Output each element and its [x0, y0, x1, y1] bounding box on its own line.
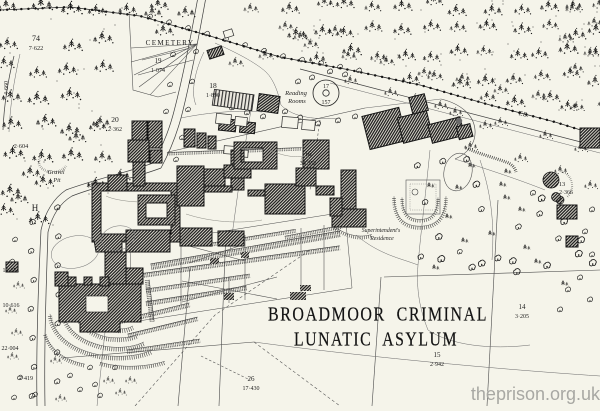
- svg-text:LUNATIC ASYLUM: LUNATIC ASYLUM: [294, 329, 458, 351]
- svg-text:7·419: 7·419: [19, 376, 33, 382]
- svg-text:19: 19: [155, 57, 163, 65]
- svg-text:Rooms: Rooms: [287, 98, 306, 105]
- svg-text:14: 14: [519, 303, 527, 311]
- svg-text:15: 15: [434, 351, 442, 359]
- svg-text:17·430: 17·430: [243, 386, 260, 392]
- svg-text:15·671: 15·671: [3, 268, 20, 274]
- svg-text:20: 20: [111, 115, 119, 124]
- svg-text:2·942: 2·942: [430, 362, 444, 368]
- svg-text:26: 26: [248, 375, 256, 383]
- svg-text:Gravel: Gravel: [47, 169, 64, 176]
- svg-text:2·362: 2·362: [108, 127, 122, 133]
- svg-text:H: H: [32, 203, 39, 213]
- svg-text:16: 16: [305, 150, 313, 158]
- svg-text:Residence: Residence: [369, 236, 394, 242]
- svg-text:1·890: 1·890: [206, 93, 220, 99]
- svg-text:Pit: Pit: [52, 177, 60, 184]
- svg-text:2·604: 2·604: [14, 143, 28, 150]
- svg-text:BROADMOOR CRIMINAL: BROADMOOR CRIMINAL: [268, 304, 488, 326]
- svg-text:3·205: 3·205: [515, 314, 529, 320]
- svg-text:Reading: Reading: [284, 90, 307, 97]
- svg-text:4·660: 4·660: [4, 81, 10, 95]
- svg-text:18: 18: [209, 81, 217, 90]
- svg-text:10·616: 10·616: [3, 303, 20, 309]
- svg-text:157: 157: [322, 100, 331, 106]
- svg-text:17: 17: [323, 84, 329, 90]
- svg-text:74: 74: [32, 34, 40, 43]
- svg-text:2·366: 2·366: [559, 190, 573, 196]
- svg-text:theprison.org.uk: theprison.org.uk: [471, 384, 600, 404]
- svg-text:Superintendent's: Superintendent's: [362, 228, 401, 234]
- svg-text:1·074: 1·074: [151, 68, 165, 74]
- svg-text:7·622: 7·622: [29, 45, 43, 52]
- svg-text:1·950: 1·950: [87, 182, 100, 188]
- svg-text:13: 13: [559, 181, 566, 188]
- svg-text:34 852: 34 852: [300, 161, 317, 167]
- svg-text:22·004: 22·004: [2, 346, 19, 352]
- svg-text:CEMETERY: CEMETERY: [146, 39, 195, 47]
